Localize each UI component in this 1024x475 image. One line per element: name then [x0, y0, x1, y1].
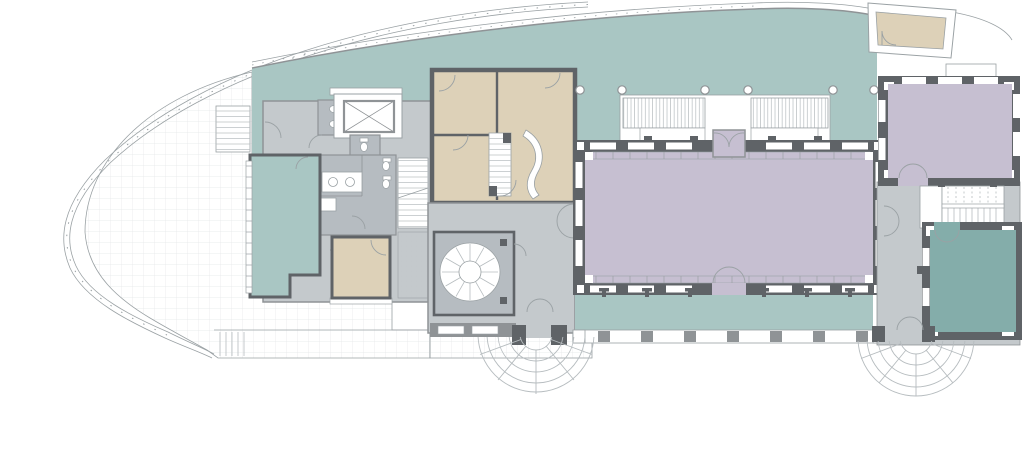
lobby-window-2	[472, 326, 498, 334]
column-icon	[870, 86, 878, 94]
lobby	[428, 203, 575, 345]
ne-porch-room	[868, 3, 956, 58]
corner-room-floor	[930, 230, 1016, 332]
east-room-stoop	[946, 64, 996, 78]
basin-icon-2	[346, 178, 355, 187]
sw-office	[330, 237, 392, 304]
grand-side-stair	[398, 158, 428, 228]
basin-counter	[322, 172, 362, 192]
switchback-stair	[920, 180, 1004, 228]
left-lounge	[246, 155, 320, 297]
east-entry-pier-right	[922, 326, 935, 342]
sw-office-room	[332, 237, 390, 298]
elevator	[330, 88, 402, 138]
column-icon	[744, 86, 752, 94]
floor-plan-page	[0, 0, 1024, 475]
interior-stair	[489, 133, 511, 196]
column-icon	[576, 86, 584, 94]
hall-floor	[585, 152, 873, 283]
deck-west-stair	[216, 106, 250, 152]
hall-south-doorway	[712, 283, 746, 295]
left-lounge-room	[250, 155, 320, 297]
hall-south-mullion-strip	[592, 276, 870, 283]
veranda-floor	[575, 295, 873, 332]
stepped-seating-east	[751, 98, 828, 128]
floor-plan-drawing	[0, 0, 1024, 475]
corner-room-doorway	[934, 222, 960, 230]
great-hall	[573, 130, 885, 295]
north-vestibule	[713, 130, 745, 157]
east-entry-pier-left	[872, 326, 885, 342]
east-room-floor	[888, 84, 1012, 178]
paving-ramp	[398, 232, 428, 298]
column-icon	[618, 86, 626, 94]
column-icon	[829, 86, 837, 94]
basin-icon	[329, 178, 338, 187]
east-room	[878, 64, 1020, 186]
office-suite	[432, 70, 575, 203]
column-icon	[701, 86, 709, 94]
entry-opening	[526, 325, 551, 338]
corner-room	[917, 222, 1022, 340]
lobby-window-1	[438, 326, 464, 334]
stepped-seating-west	[623, 98, 705, 128]
ne-porch-floor	[876, 12, 946, 49]
shower-icon	[320, 198, 336, 211]
toilet-icon-b	[360, 138, 368, 152]
south-veranda	[573, 288, 885, 343]
east-room-doorway	[898, 178, 928, 186]
